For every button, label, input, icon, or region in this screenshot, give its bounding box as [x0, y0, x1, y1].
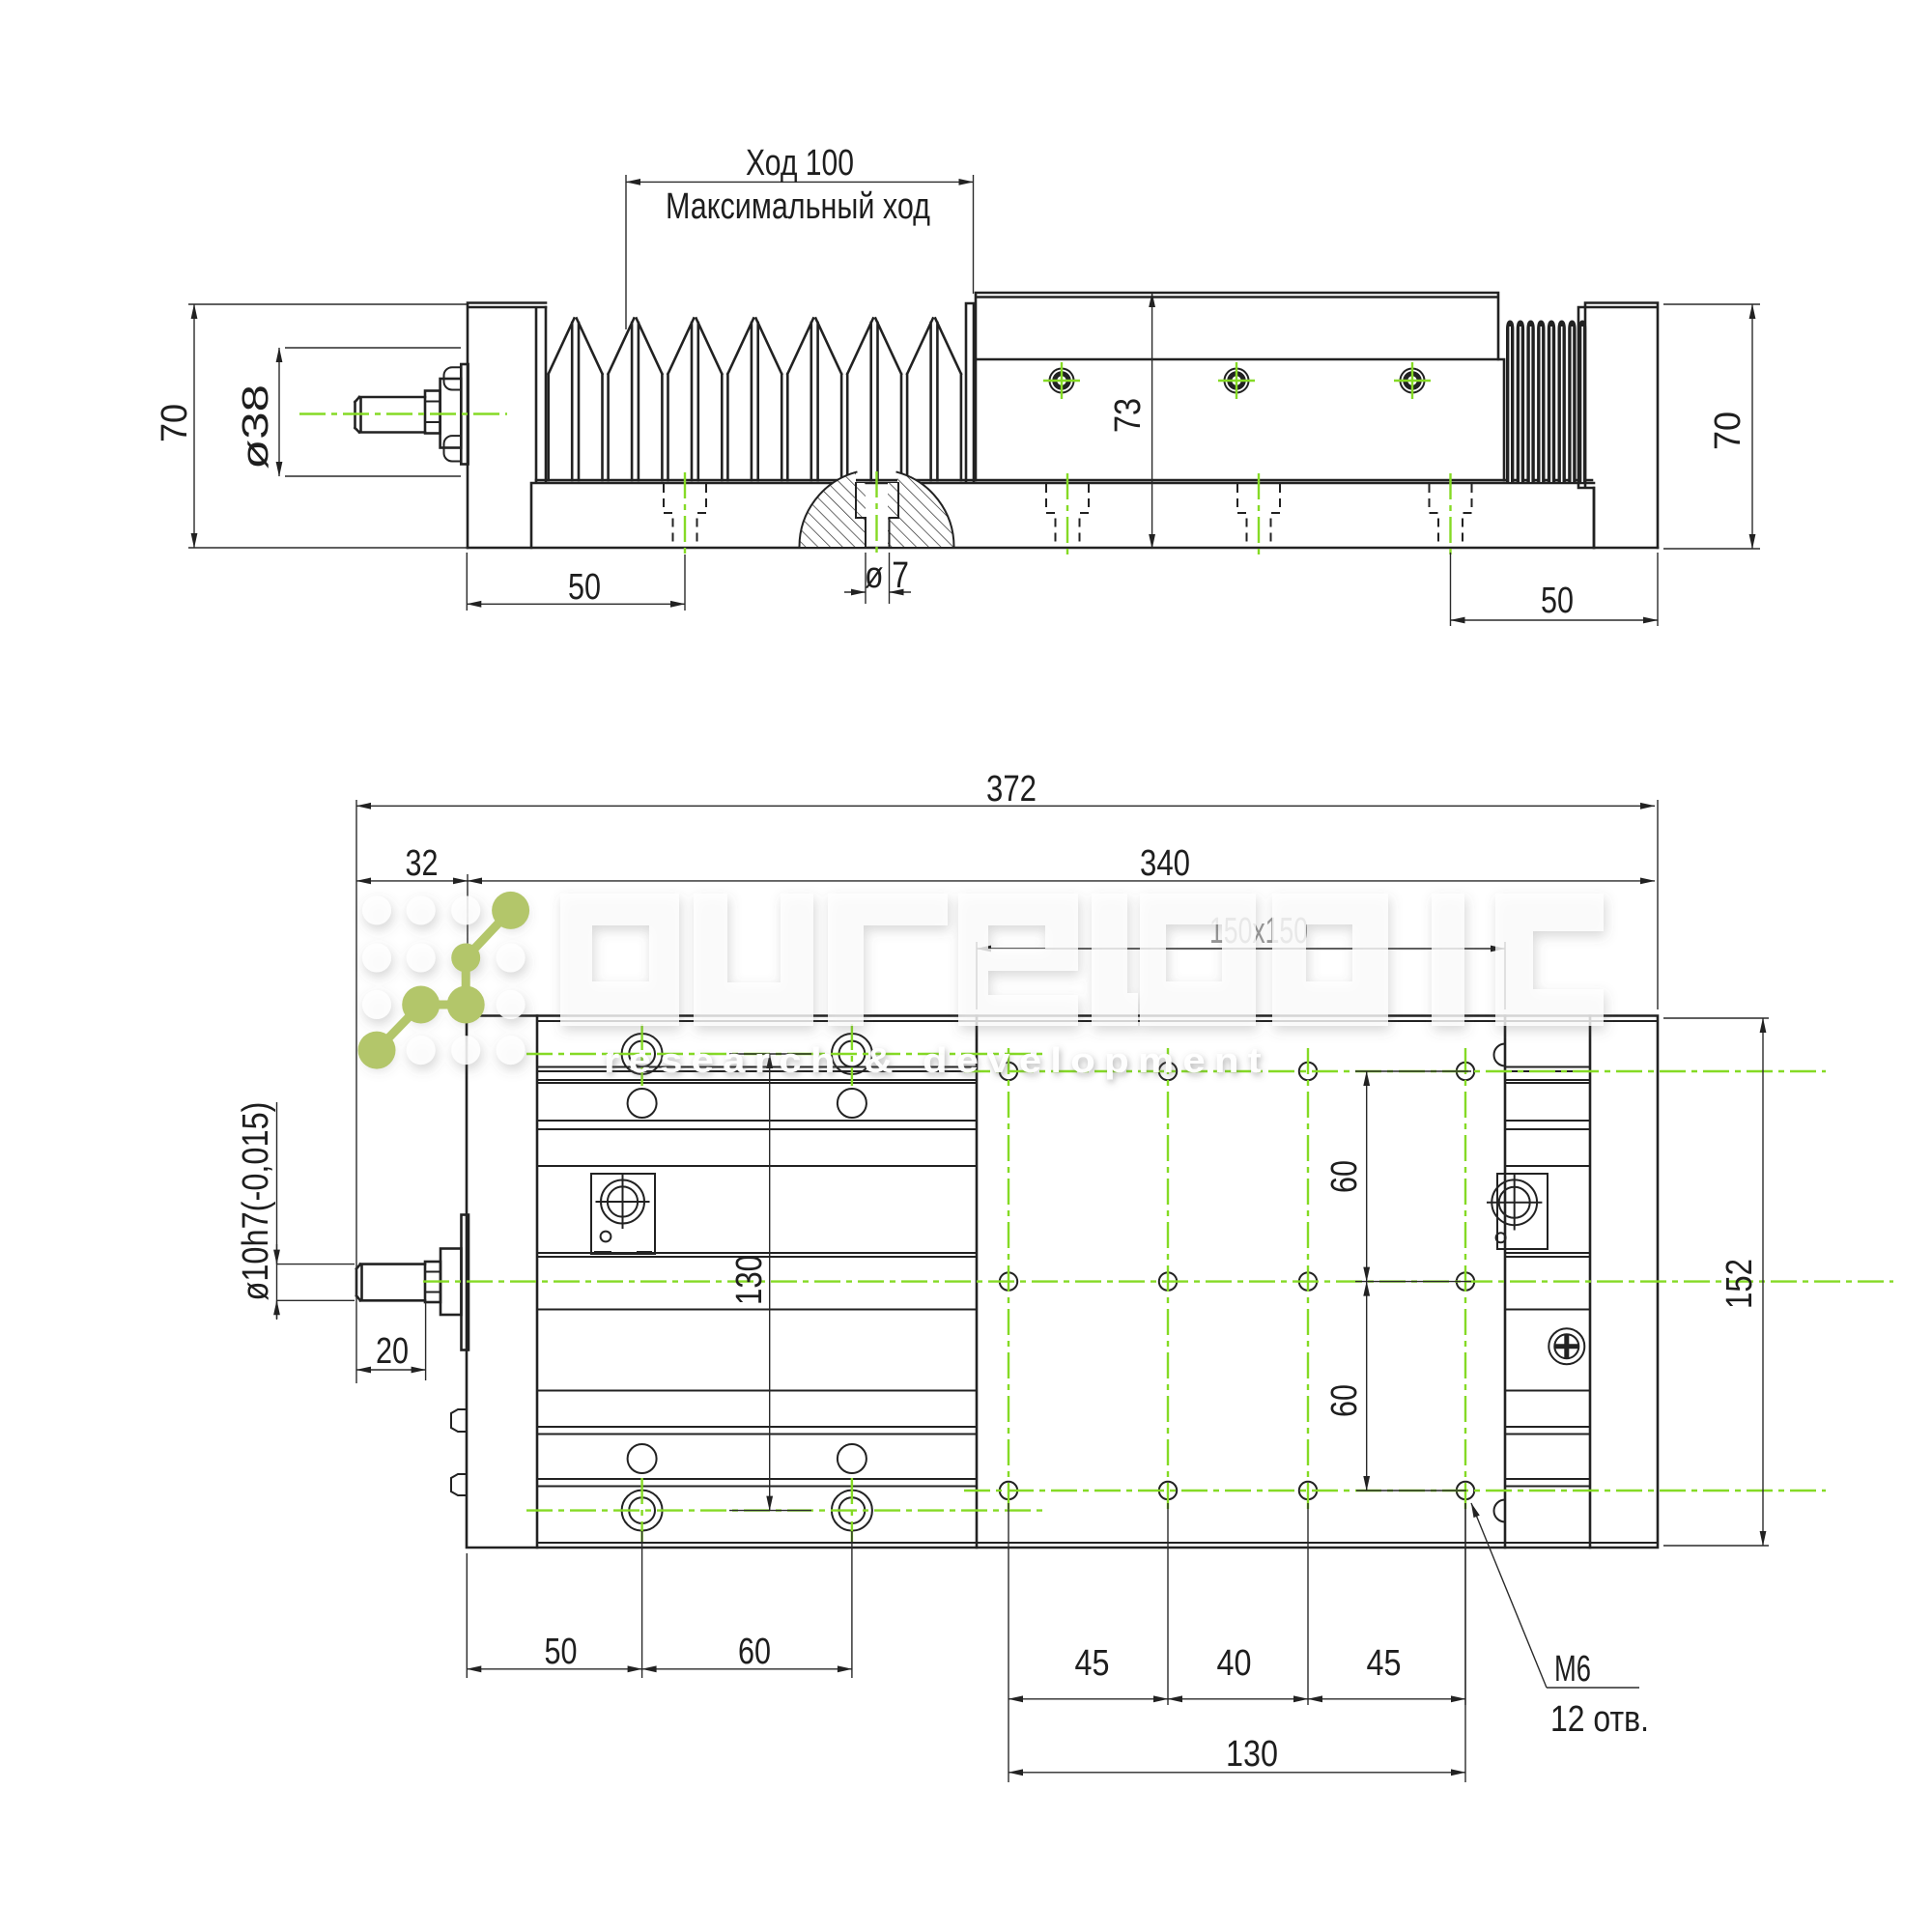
svg-text:research & development: research & development	[604, 1040, 1270, 1080]
svg-text:ø38: ø38	[236, 384, 276, 469]
svg-text:12 отв.: 12 отв.	[1550, 1699, 1649, 1740]
svg-text:45: 45	[1367, 1643, 1402, 1684]
svg-text:60: 60	[738, 1632, 771, 1672]
svg-text:60: 60	[1324, 1384, 1365, 1417]
svg-text:45: 45	[1075, 1643, 1110, 1684]
svg-text:M6: M6	[1554, 1649, 1591, 1690]
svg-text:372: 372	[986, 769, 1037, 810]
svg-text:340: 340	[1140, 843, 1190, 884]
svg-text:50: 50	[568, 567, 601, 608]
svg-text:60: 60	[1324, 1160, 1365, 1193]
svg-text:ø 7: ø 7	[865, 555, 909, 596]
svg-text:70: 70	[155, 404, 195, 442]
svg-text:ø10h7(-0,015): ø10h7(-0,015)	[236, 1102, 276, 1301]
svg-text:130: 130	[729, 1255, 770, 1305]
svg-text:40: 40	[1217, 1643, 1252, 1684]
svg-text:70: 70	[1708, 412, 1748, 450]
svg-text:32: 32	[406, 843, 439, 884]
svg-text:20: 20	[376, 1331, 409, 1372]
svg-text:50: 50	[545, 1632, 578, 1672]
svg-text:73: 73	[1108, 398, 1149, 433]
svg-text:130: 130	[1226, 1734, 1278, 1775]
svg-text:152: 152	[1719, 1259, 1760, 1309]
svg-text:Максимальный ход: Максимальный ход	[666, 186, 930, 227]
svg-text:50: 50	[1541, 581, 1574, 621]
svg-text:Ход 100: Ход 100	[746, 143, 854, 184]
